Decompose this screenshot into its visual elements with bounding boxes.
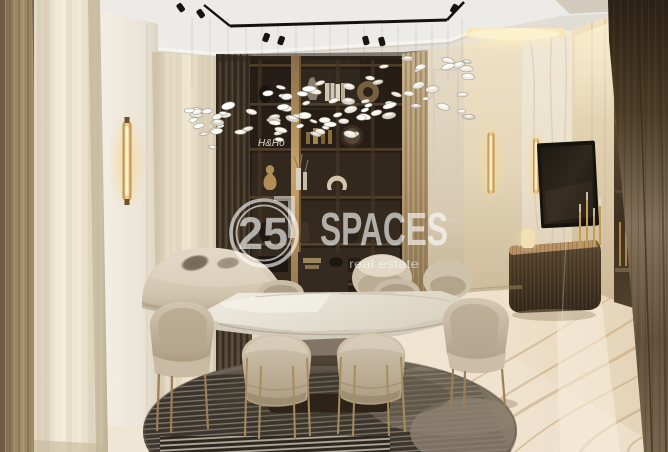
svg-text:real estate: real estate xyxy=(349,257,419,271)
svg-text:25: 25 xyxy=(238,208,288,259)
svg-text:SPACES: SPACES xyxy=(320,203,448,255)
